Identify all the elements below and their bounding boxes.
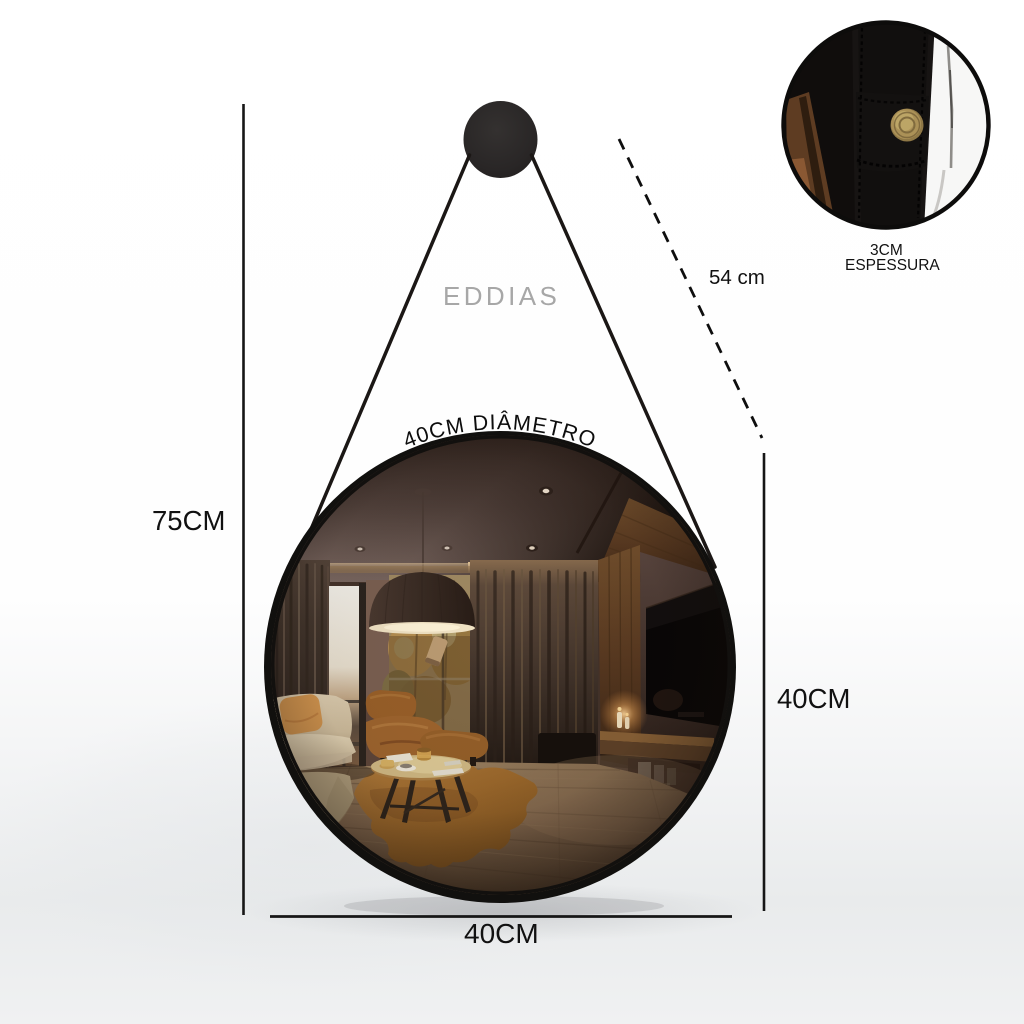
svg-text:40CM: 40CM (464, 918, 539, 949)
svg-text:EDDIAS: EDDIAS (443, 281, 560, 311)
svg-text:ESPESSURA: ESPESSURA (845, 257, 940, 274)
svg-text:40CM: 40CM (777, 683, 850, 714)
svg-text:75CM: 75CM (152, 505, 225, 536)
svg-text:54 cm: 54 cm (709, 266, 765, 289)
